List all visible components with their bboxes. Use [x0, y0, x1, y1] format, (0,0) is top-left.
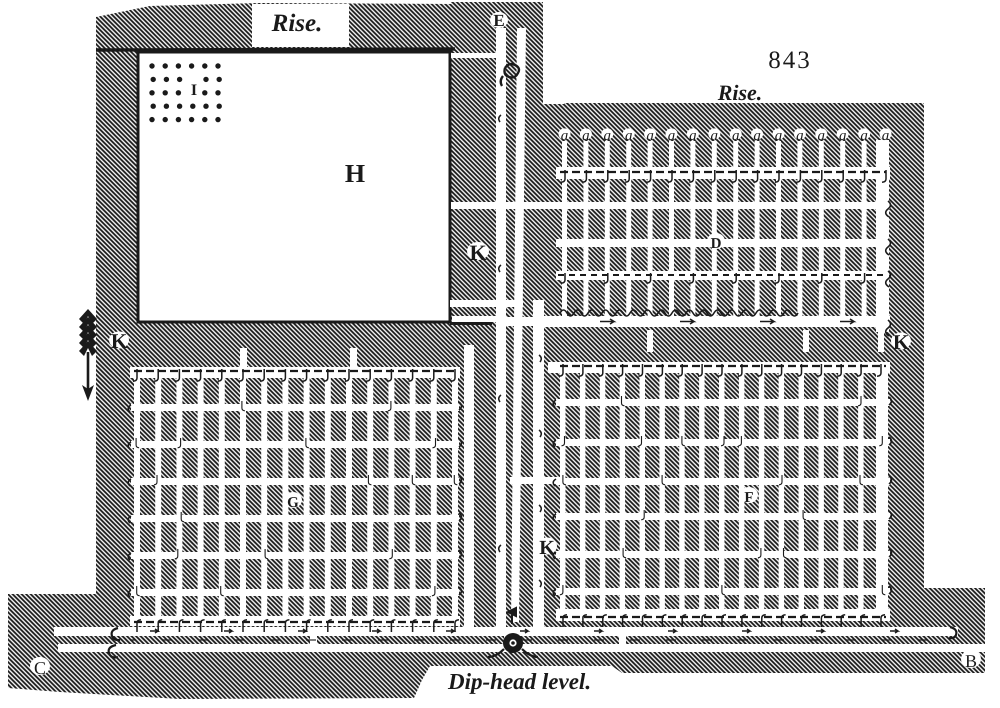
svg-text:I: I — [191, 82, 197, 99]
svg-text:K: K — [469, 240, 486, 265]
svg-text:a: a — [796, 128, 804, 144]
svg-text:a: a — [561, 128, 569, 144]
svg-text:C: C — [34, 658, 46, 678]
svg-text:a: a — [775, 128, 783, 144]
svg-text:a: a — [732, 128, 740, 144]
svg-text:843: 843 — [768, 47, 812, 74]
svg-text:Rise.: Rise. — [271, 10, 323, 37]
svg-text:F: F — [744, 490, 753, 506]
svg-text:Dip-head level.: Dip-head level. — [447, 669, 591, 694]
svg-text:a: a — [882, 128, 890, 144]
svg-text:a: a — [668, 128, 676, 144]
svg-text:B: B — [965, 651, 977, 671]
svg-text:H: H — [345, 159, 365, 188]
svg-text:a: a — [646, 128, 654, 144]
svg-text:K: K — [893, 330, 910, 354]
svg-text:a: a — [753, 128, 761, 144]
svg-text:G: G — [287, 495, 299, 511]
svg-text:a: a — [860, 128, 868, 144]
svg-text:Rise.: Rise. — [717, 80, 763, 105]
svg-text:a: a — [839, 128, 847, 144]
svg-text:E: E — [493, 11, 504, 30]
svg-text:a: a — [711, 128, 719, 144]
svg-text:K: K — [539, 537, 555, 559]
svg-text:a: a — [818, 128, 826, 144]
svg-text:a: a — [625, 128, 633, 144]
svg-text:a: a — [689, 128, 697, 144]
svg-text:K: K — [111, 329, 128, 353]
svg-text:a: a — [582, 128, 590, 144]
svg-text:D: D — [711, 236, 722, 252]
svg-text:a: a — [604, 128, 612, 144]
